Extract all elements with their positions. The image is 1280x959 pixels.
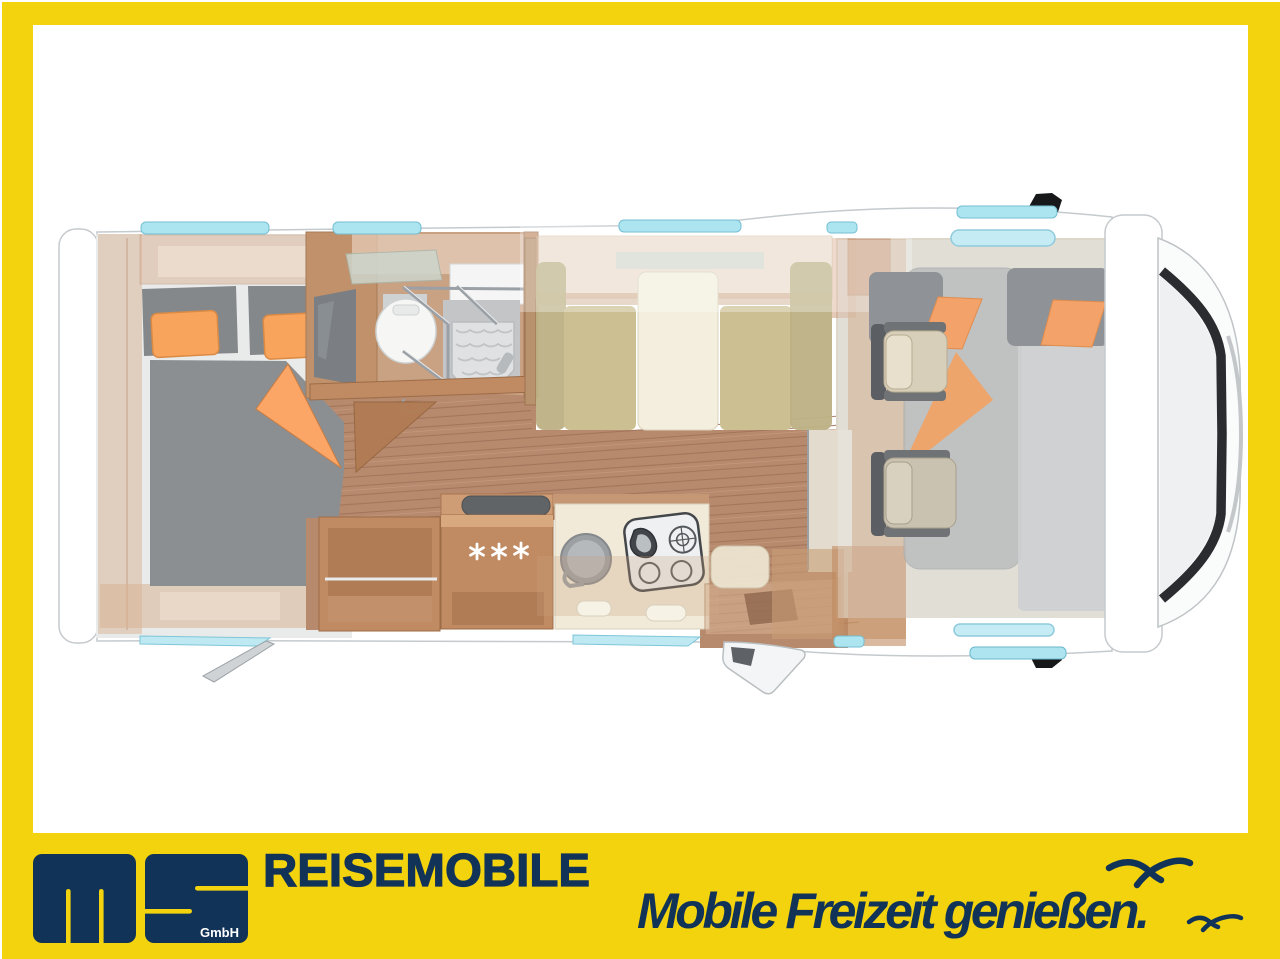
svg-text:GmbH: GmbH [200,925,239,940]
svg-text:Mobile Freizeit genießen.: Mobile Freizeit genießen. [637,883,1147,939]
svg-text:REISEMOBILE: REISEMOBILE [263,844,590,896]
